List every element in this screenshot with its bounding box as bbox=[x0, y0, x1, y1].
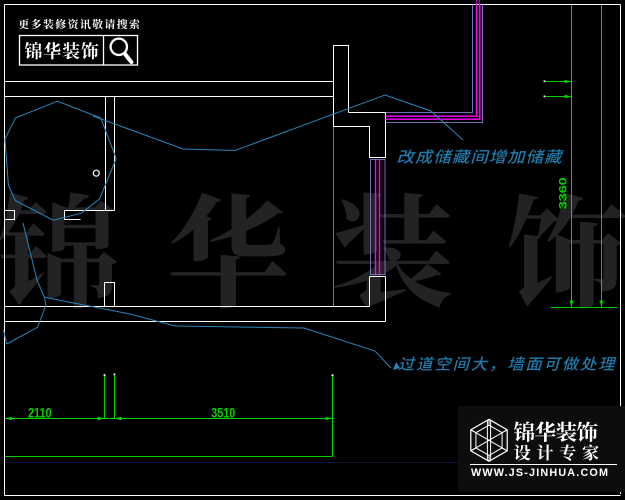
svg-text:2110: 2110 bbox=[28, 406, 52, 421]
svg-text:WWW.JS-JINHUA.COM: WWW.JS-JINHUA.COM bbox=[471, 467, 608, 479]
svg-text:3360: 3360 bbox=[557, 177, 569, 209]
svg-text:3510: 3510 bbox=[211, 406, 235, 421]
